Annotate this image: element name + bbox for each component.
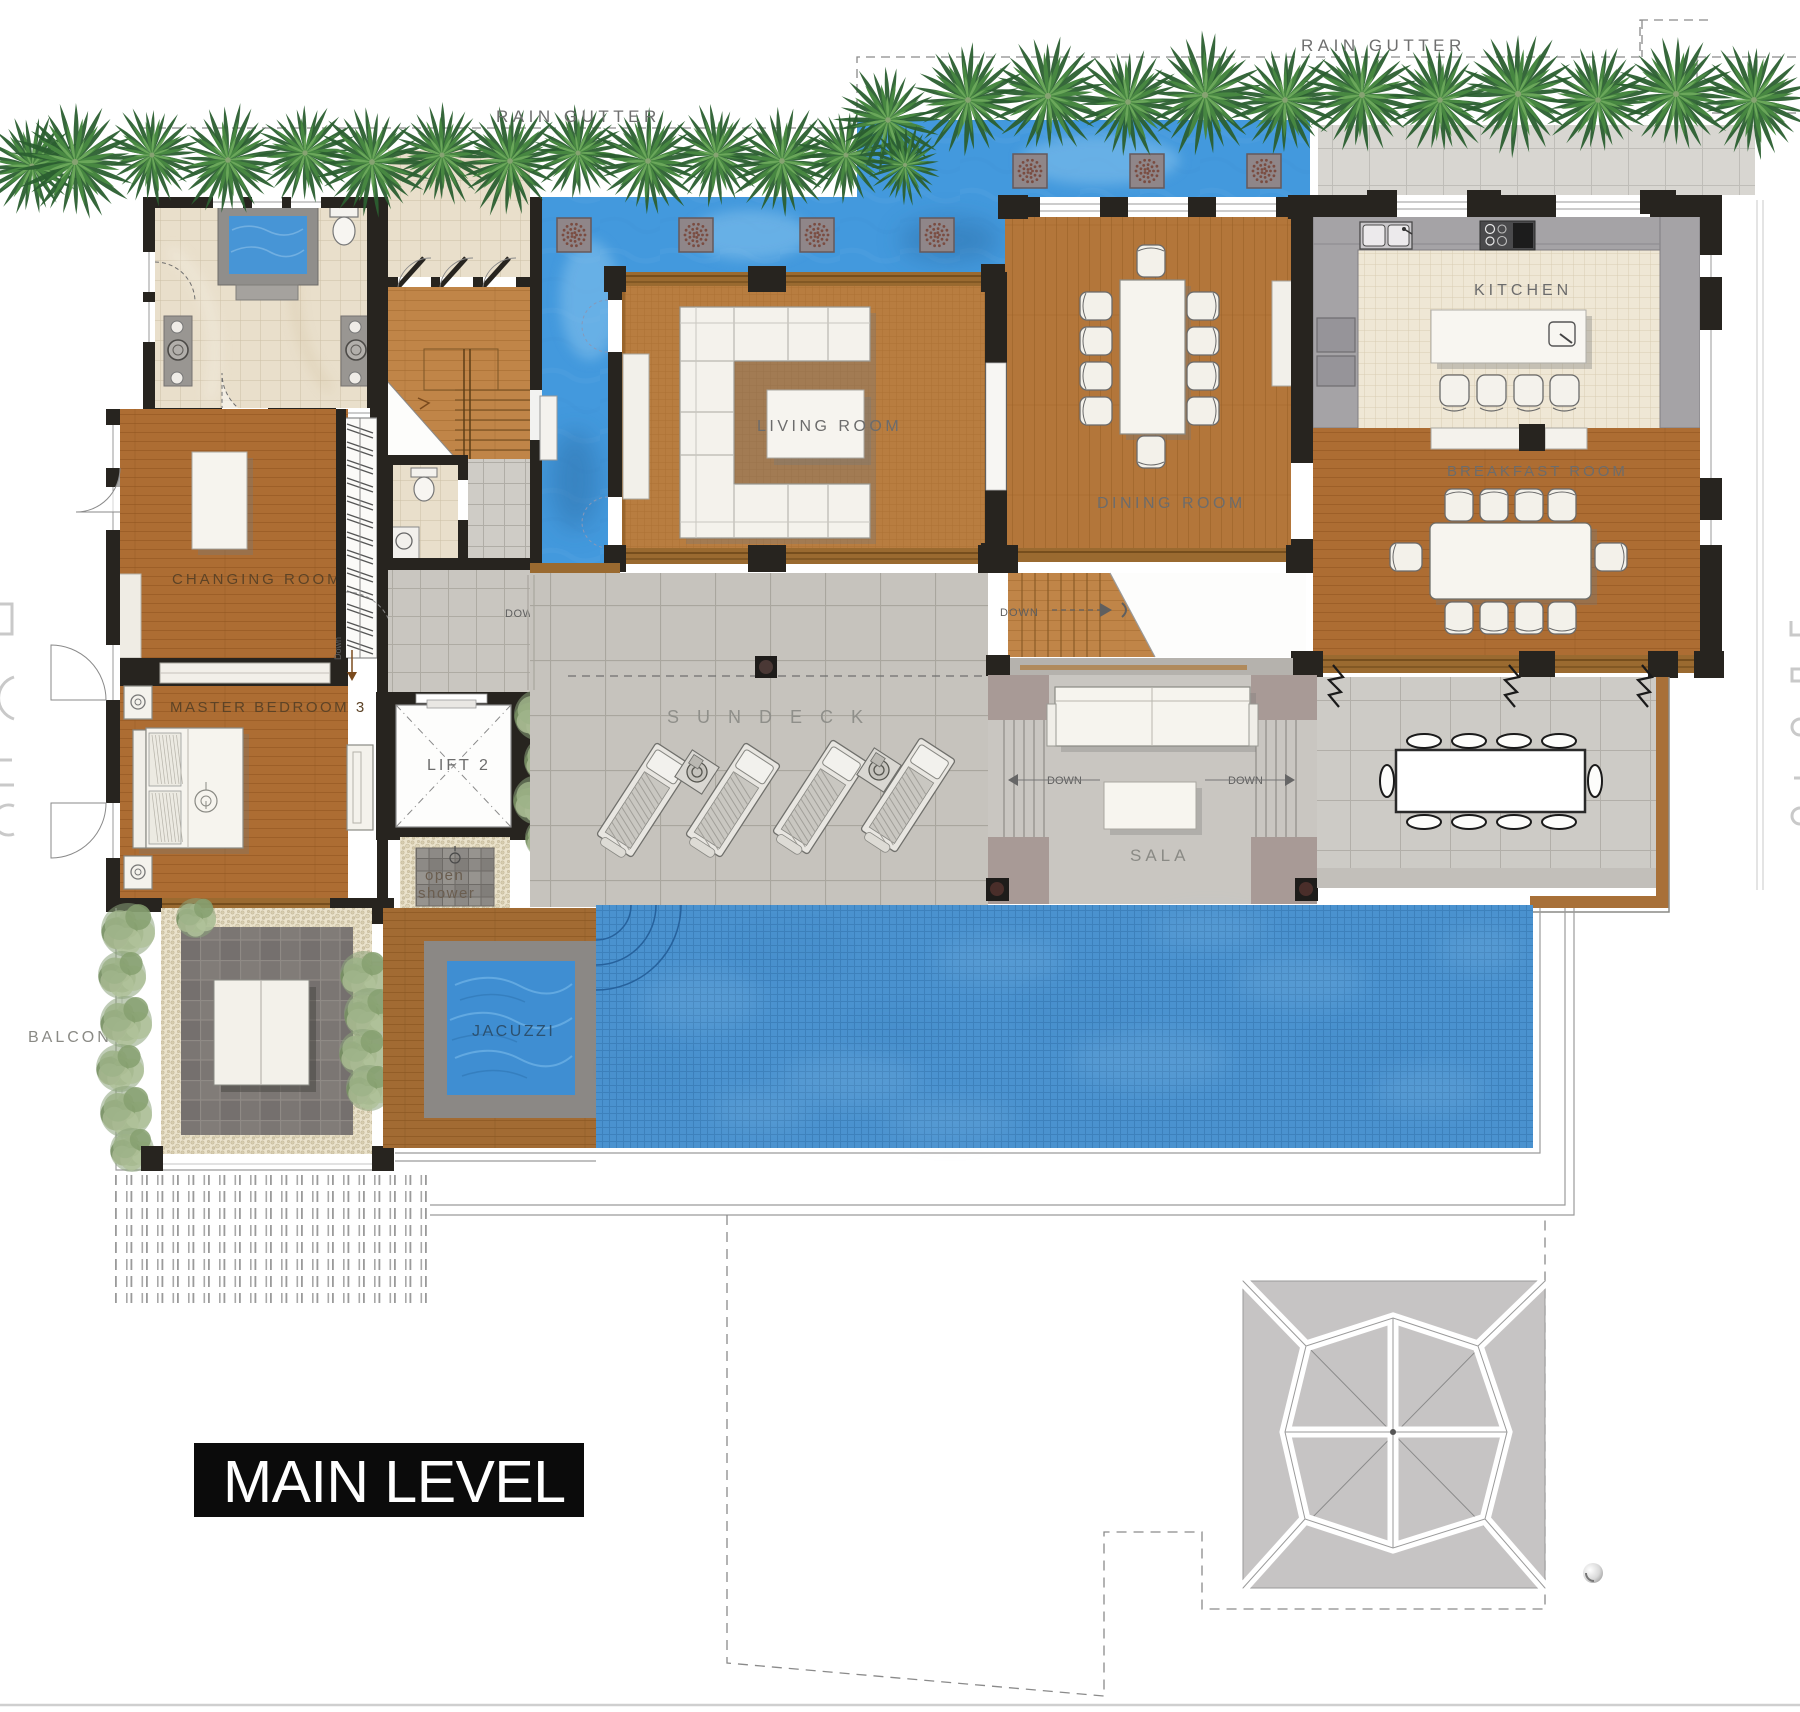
svg-text:LIFT 2: LIFT 2 bbox=[427, 757, 491, 774]
svg-text:BREAKFAST ROOM: BREAKFAST ROOM bbox=[1447, 463, 1628, 480]
svg-text:SALA: SALA bbox=[1130, 846, 1189, 865]
svg-text:KITCHEN: KITCHEN bbox=[1474, 282, 1572, 299]
svg-text:JACUZZI: JACUZZI bbox=[472, 1023, 555, 1040]
svg-text:DOWN: DOWN bbox=[1047, 775, 1082, 787]
svg-text:RAIN GUTTER: RAIN GUTTER bbox=[1301, 36, 1466, 55]
svg-text:shower: shower bbox=[418, 885, 475, 902]
svg-text:MAIN LEVEL: MAIN LEVEL bbox=[223, 1449, 566, 1515]
svg-text:Down: Down bbox=[333, 637, 343, 660]
svg-text:SUNDECK: SUNDECK bbox=[667, 707, 881, 727]
svg-text:DINING ROOM: DINING ROOM bbox=[1097, 495, 1246, 512]
svg-text:CHANGING ROOM: CHANGING ROOM bbox=[172, 571, 343, 588]
svg-text:DOWN: DOWN bbox=[1000, 607, 1039, 619]
svg-text:open: open bbox=[425, 867, 464, 884]
svg-text:MASTER BEDROOM 3: MASTER BEDROOM 3 bbox=[170, 699, 367, 716]
svg-text:RAIN GUTTER: RAIN GUTTER bbox=[496, 107, 661, 126]
svg-text:LIVING ROOM: LIVING ROOM bbox=[757, 418, 902, 435]
svg-text:DOWN: DOWN bbox=[1228, 775, 1263, 787]
